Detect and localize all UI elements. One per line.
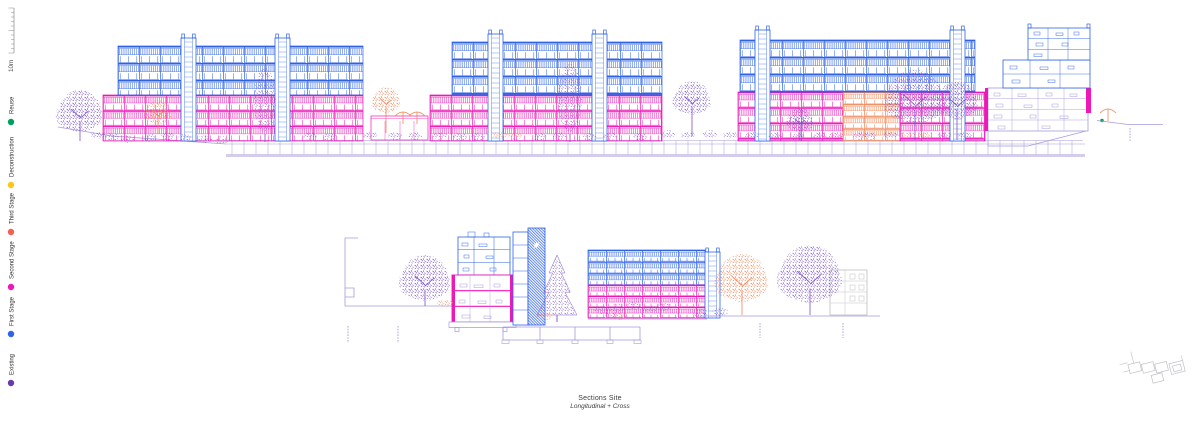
legend-label: Reuse bbox=[10, 96, 16, 114]
legend-label: Existing bbox=[10, 354, 16, 375]
legend-item-reuse: Reuse bbox=[8, 96, 16, 125]
sections-drawing: 10mReuseDeconstructionThird StageSecond … bbox=[0, 0, 1200, 424]
legend-item-second-stage: Second Stage bbox=[8, 241, 16, 291]
bush bbox=[583, 133, 597, 141]
bush bbox=[692, 309, 708, 317]
bush bbox=[604, 309, 620, 317]
bush bbox=[703, 130, 717, 138]
legend-label: Third Stage bbox=[10, 192, 16, 224]
drawing-sheet: 10mReuseDeconstructionThird StageSecond … bbox=[0, 0, 1200, 424]
legend: ReuseDeconstructionThird StageSecond Sta… bbox=[8, 96, 16, 386]
bush bbox=[745, 132, 759, 140]
bush bbox=[863, 132, 877, 140]
legend-label: Second Stage bbox=[10, 241, 16, 279]
bush bbox=[143, 134, 157, 142]
longitudinal-section bbox=[56, 24, 1163, 156]
bush bbox=[161, 132, 175, 140]
cross-section bbox=[345, 228, 880, 344]
bush bbox=[829, 132, 843, 140]
legend-item-third-stage: Third Stage bbox=[8, 192, 16, 235]
bush bbox=[121, 135, 135, 143]
bush bbox=[958, 132, 972, 140]
scale-label: 10m bbox=[8, 60, 15, 72]
bush bbox=[303, 132, 317, 140]
bush bbox=[656, 303, 672, 311]
bush bbox=[626, 302, 642, 310]
bush bbox=[363, 131, 377, 139]
sheet-title: Sections Site bbox=[0, 395, 1200, 402]
scale-bar: 10m bbox=[8, 8, 15, 72]
bush bbox=[603, 132, 617, 140]
bush bbox=[768, 132, 782, 140]
bush bbox=[408, 132, 422, 140]
existing-dot-icon bbox=[8, 380, 14, 386]
section-building bbox=[449, 232, 516, 332]
bush bbox=[533, 133, 547, 141]
bush bbox=[215, 136, 229, 144]
bush bbox=[508, 132, 522, 140]
bush bbox=[633, 133, 647, 141]
tree bbox=[399, 255, 451, 306]
shrub bbox=[1100, 119, 1104, 123]
deconstruction-dot-icon bbox=[8, 182, 14, 188]
title-block: Sections Site Longitudinal + Cross bbox=[0, 395, 1200, 410]
bush bbox=[105, 133, 119, 141]
bush bbox=[723, 131, 737, 139]
bush bbox=[537, 312, 553, 320]
first-stage-dot-icon bbox=[8, 331, 14, 337]
bush bbox=[712, 308, 728, 316]
bush bbox=[883, 131, 897, 139]
bush bbox=[901, 130, 915, 138]
legend-item-first-stage: First Stage bbox=[8, 296, 16, 337]
tree bbox=[714, 254, 768, 315]
legend-item-existing: Existing bbox=[8, 354, 16, 386]
second-stage-dot-icon bbox=[8, 284, 14, 290]
bush bbox=[323, 133, 337, 141]
site-key-plan bbox=[1117, 340, 1186, 390]
bush bbox=[813, 132, 827, 140]
bush bbox=[791, 133, 805, 141]
bush bbox=[91, 131, 105, 139]
legend-label: First Stage bbox=[10, 296, 16, 326]
legend-label: Deconstruction bbox=[10, 137, 16, 177]
bush bbox=[471, 133, 485, 141]
bush bbox=[178, 134, 192, 142]
bush bbox=[642, 305, 658, 313]
bush bbox=[918, 131, 932, 139]
third-stage-dot-icon bbox=[8, 229, 14, 235]
bush bbox=[437, 299, 453, 307]
legend-item-deconstruction: Deconstruction bbox=[8, 137, 16, 188]
bush bbox=[433, 132, 447, 140]
bush bbox=[661, 130, 675, 138]
bush bbox=[493, 131, 507, 139]
sheet-subtitle: Longitudinal + Cross bbox=[0, 403, 1200, 410]
bush bbox=[453, 133, 467, 141]
reuse-dot-icon bbox=[8, 119, 14, 125]
bush bbox=[198, 135, 212, 143]
bush bbox=[681, 131, 695, 139]
section-building bbox=[985, 24, 1091, 146]
bush bbox=[553, 132, 567, 140]
bush bbox=[938, 131, 952, 139]
bush bbox=[388, 132, 402, 140]
tree bbox=[672, 81, 710, 136]
